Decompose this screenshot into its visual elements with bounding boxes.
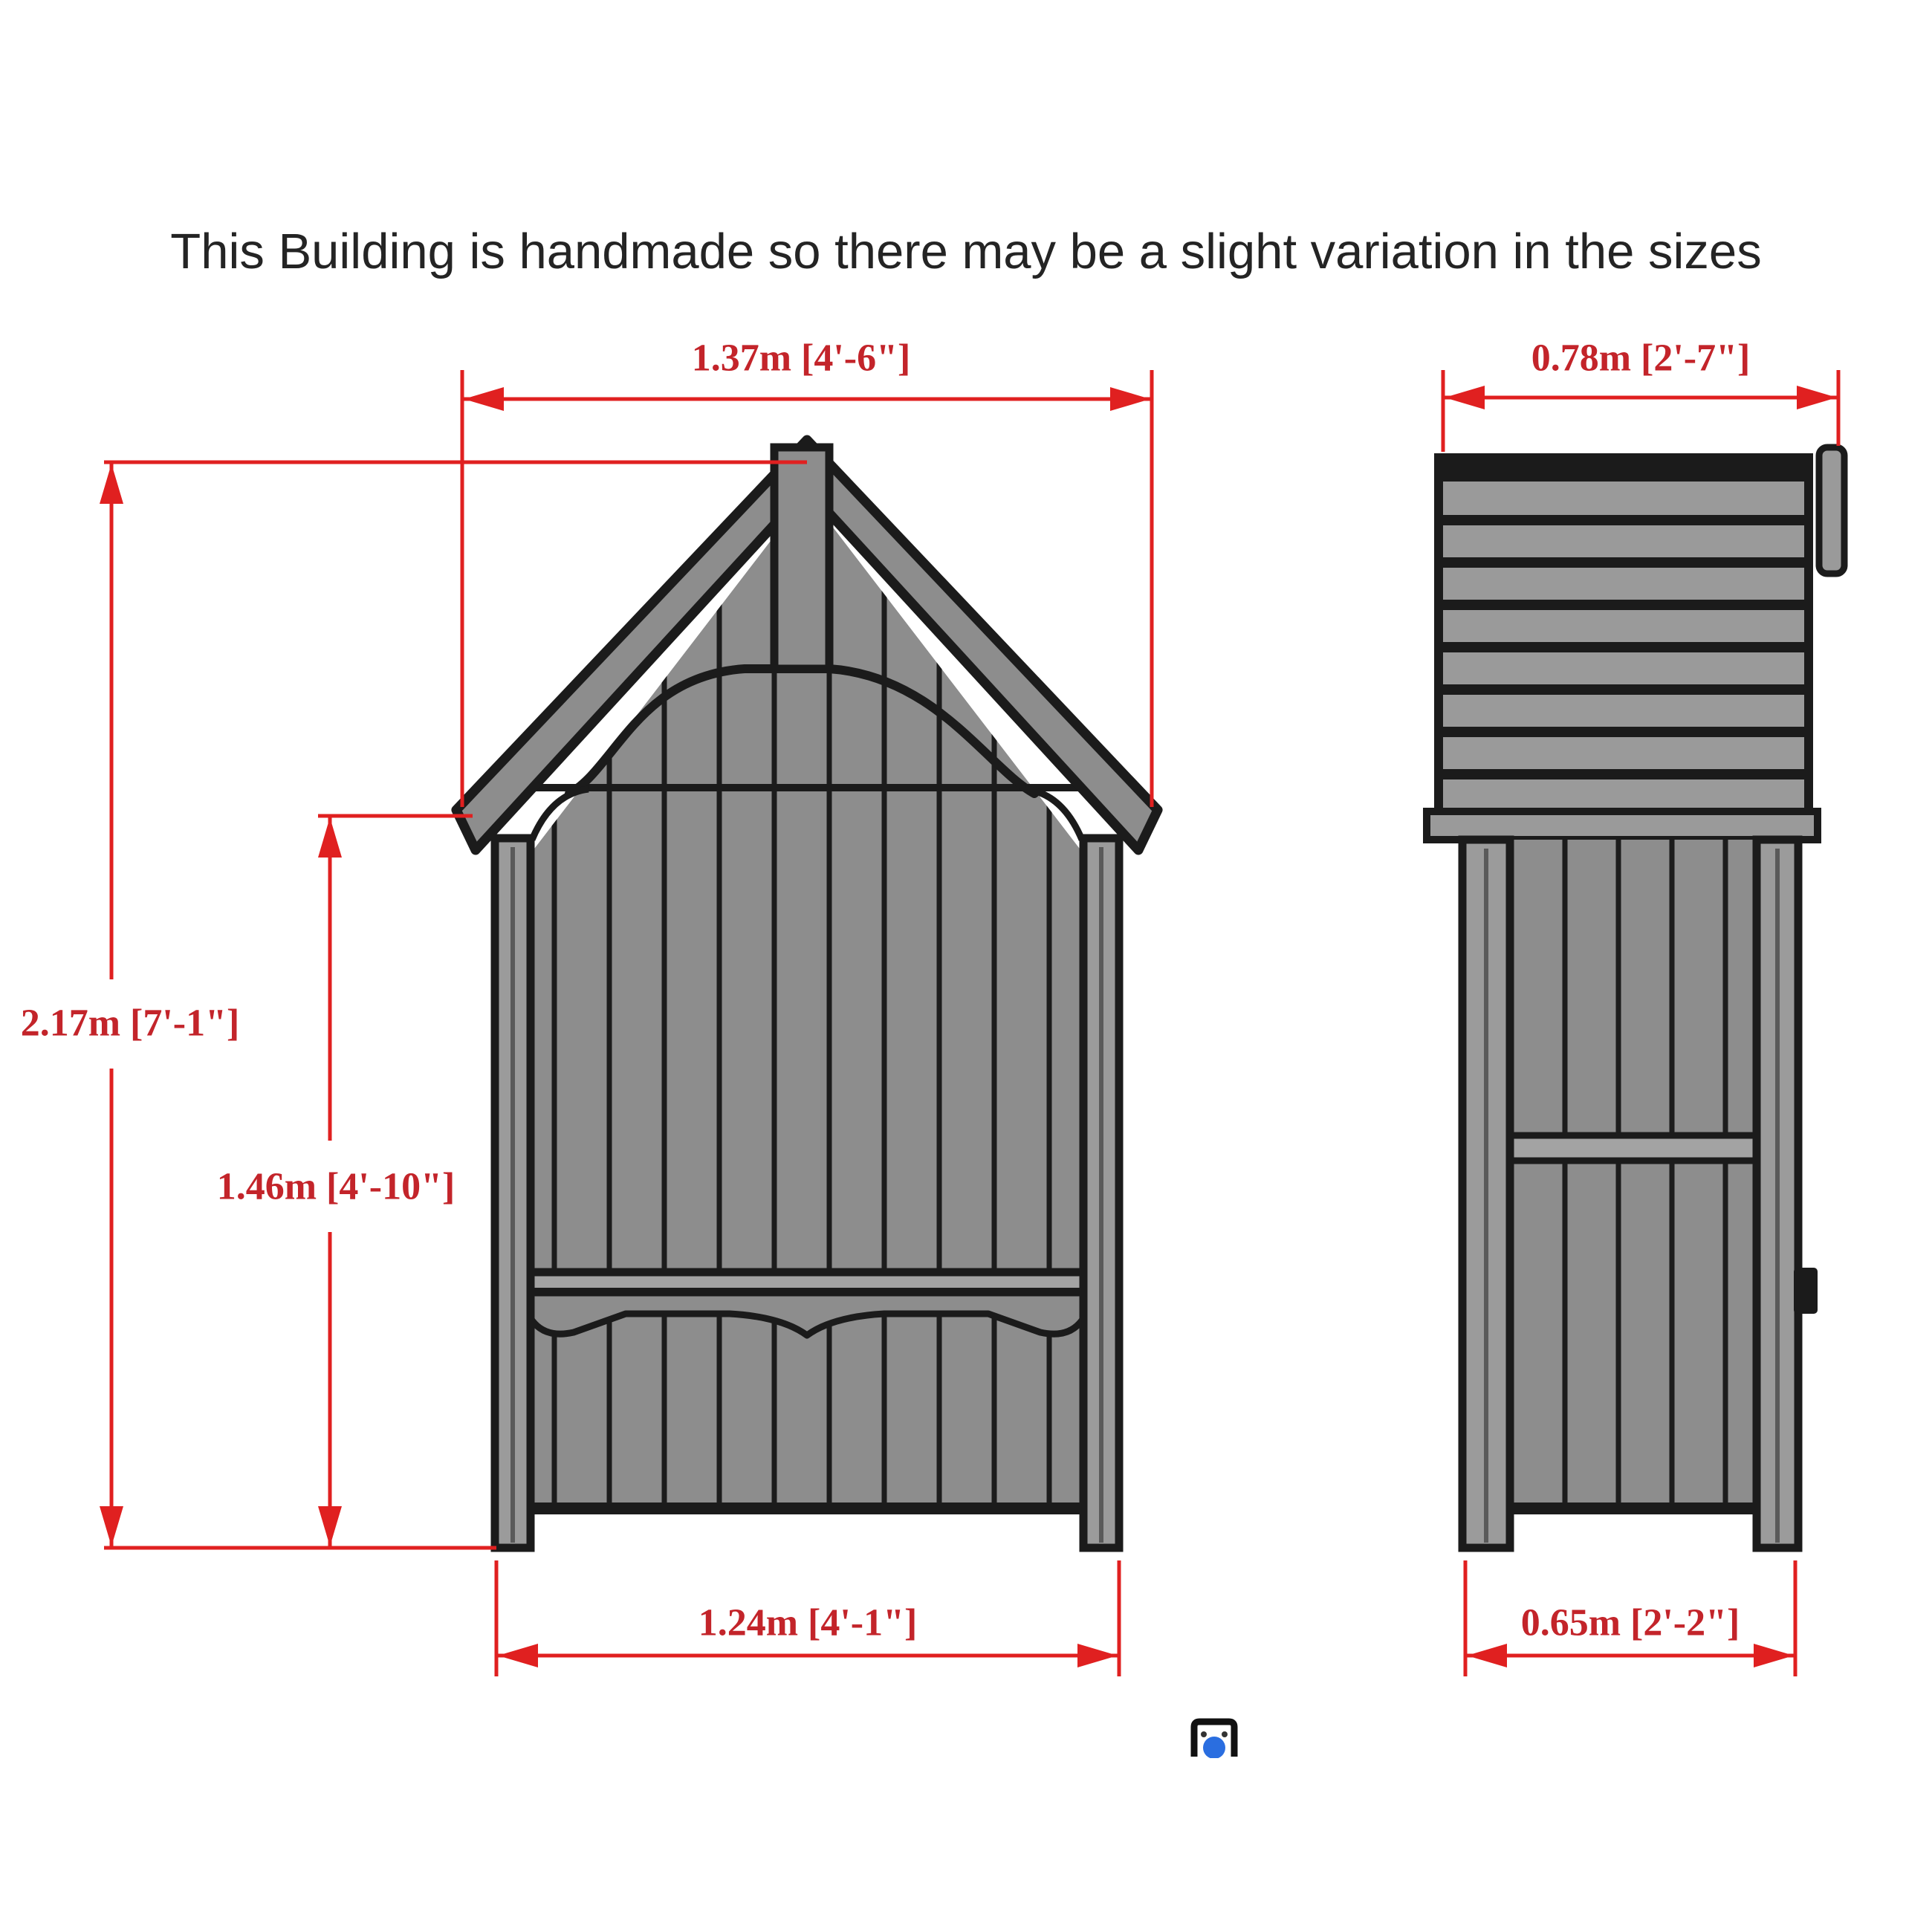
dim-side-depth: [1443, 370, 1838, 452]
dim-label-eaves-height: 1.46m [4'-10"]: [217, 1165, 456, 1209]
page-title: This Building is handmade so there may b…: [0, 223, 1932, 280]
dim-label-side-depth: 0.78m [2'-7"]: [1531, 337, 1751, 380]
front-elevation: [456, 440, 1158, 1548]
front-king-post: [774, 447, 829, 669]
dim-label-side-base-depth: 0.65m [2'-2"]: [1521, 1601, 1740, 1645]
broken-image-icon: [1190, 1718, 1239, 1762]
front-left-post: [495, 838, 531, 1548]
side-mid-rail: [1508, 1135, 1758, 1161]
side-wall-planks: [1510, 840, 1757, 1508]
dim-label-front-base-width: 1.24m [4'-1"]: [698, 1601, 918, 1645]
side-roof: [1427, 458, 1818, 840]
front-seat-rail: [528, 1271, 1085, 1290]
dim-label-overall-height: 2.17m [7'-1"]: [21, 1002, 240, 1046]
diagram-page: This Building is handmade so there may b…: [0, 0, 1932, 1932]
side-latch: [1794, 1268, 1818, 1314]
side-right-post: [1757, 840, 1798, 1548]
front-right-post: [1083, 838, 1119, 1548]
side-left-post: [1462, 840, 1510, 1548]
front-base-rail: [525, 1503, 1089, 1514]
side-elevation: [1427, 447, 1844, 1548]
side-base-rail: [1483, 1503, 1779, 1514]
side-finial: [1819, 447, 1844, 574]
dim-label-front-width: 1.37m [4'-6"]: [692, 337, 911, 380]
